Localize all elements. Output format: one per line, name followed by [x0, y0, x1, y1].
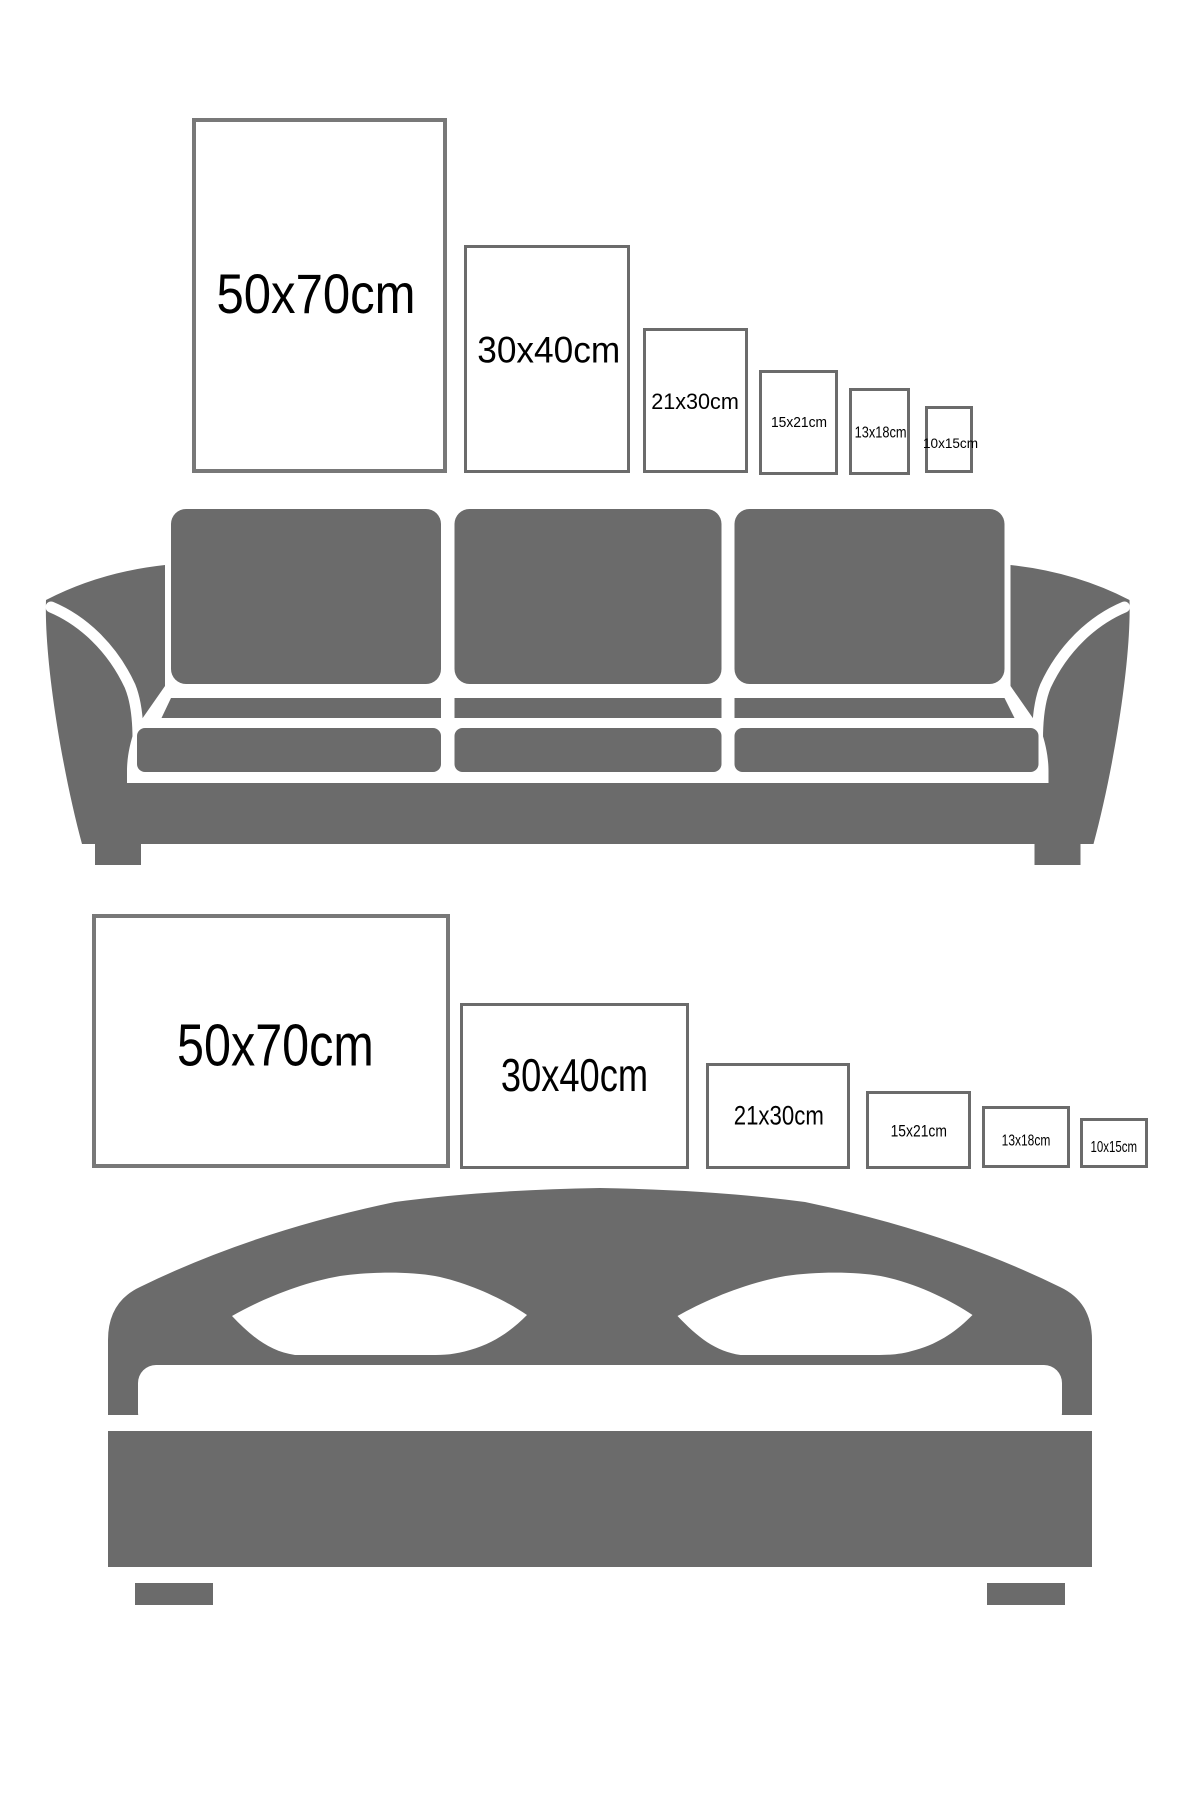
svg-text:10x15cm: 10x15cm — [923, 436, 978, 451]
svg-text:30x40cm: 30x40cm — [501, 1049, 648, 1101]
svg-text:50x70cm: 50x70cm — [177, 1013, 374, 1079]
svg-text:30x40cm: 30x40cm — [477, 328, 620, 370]
svg-text:15x21cm: 15x21cm — [891, 1122, 947, 1140]
svg-text:10x15cm: 10x15cm — [1091, 1138, 1138, 1155]
svg-text:50x70cm: 50x70cm — [217, 263, 416, 326]
svg-text:21x30cm: 21x30cm — [734, 1102, 824, 1132]
svg-text:13x18cm: 13x18cm — [855, 424, 907, 442]
svg-text:15x21cm: 15x21cm — [771, 415, 827, 432]
svg-text:13x18cm: 13x18cm — [1002, 1131, 1051, 1149]
svg-text:21x30cm: 21x30cm — [651, 389, 739, 415]
